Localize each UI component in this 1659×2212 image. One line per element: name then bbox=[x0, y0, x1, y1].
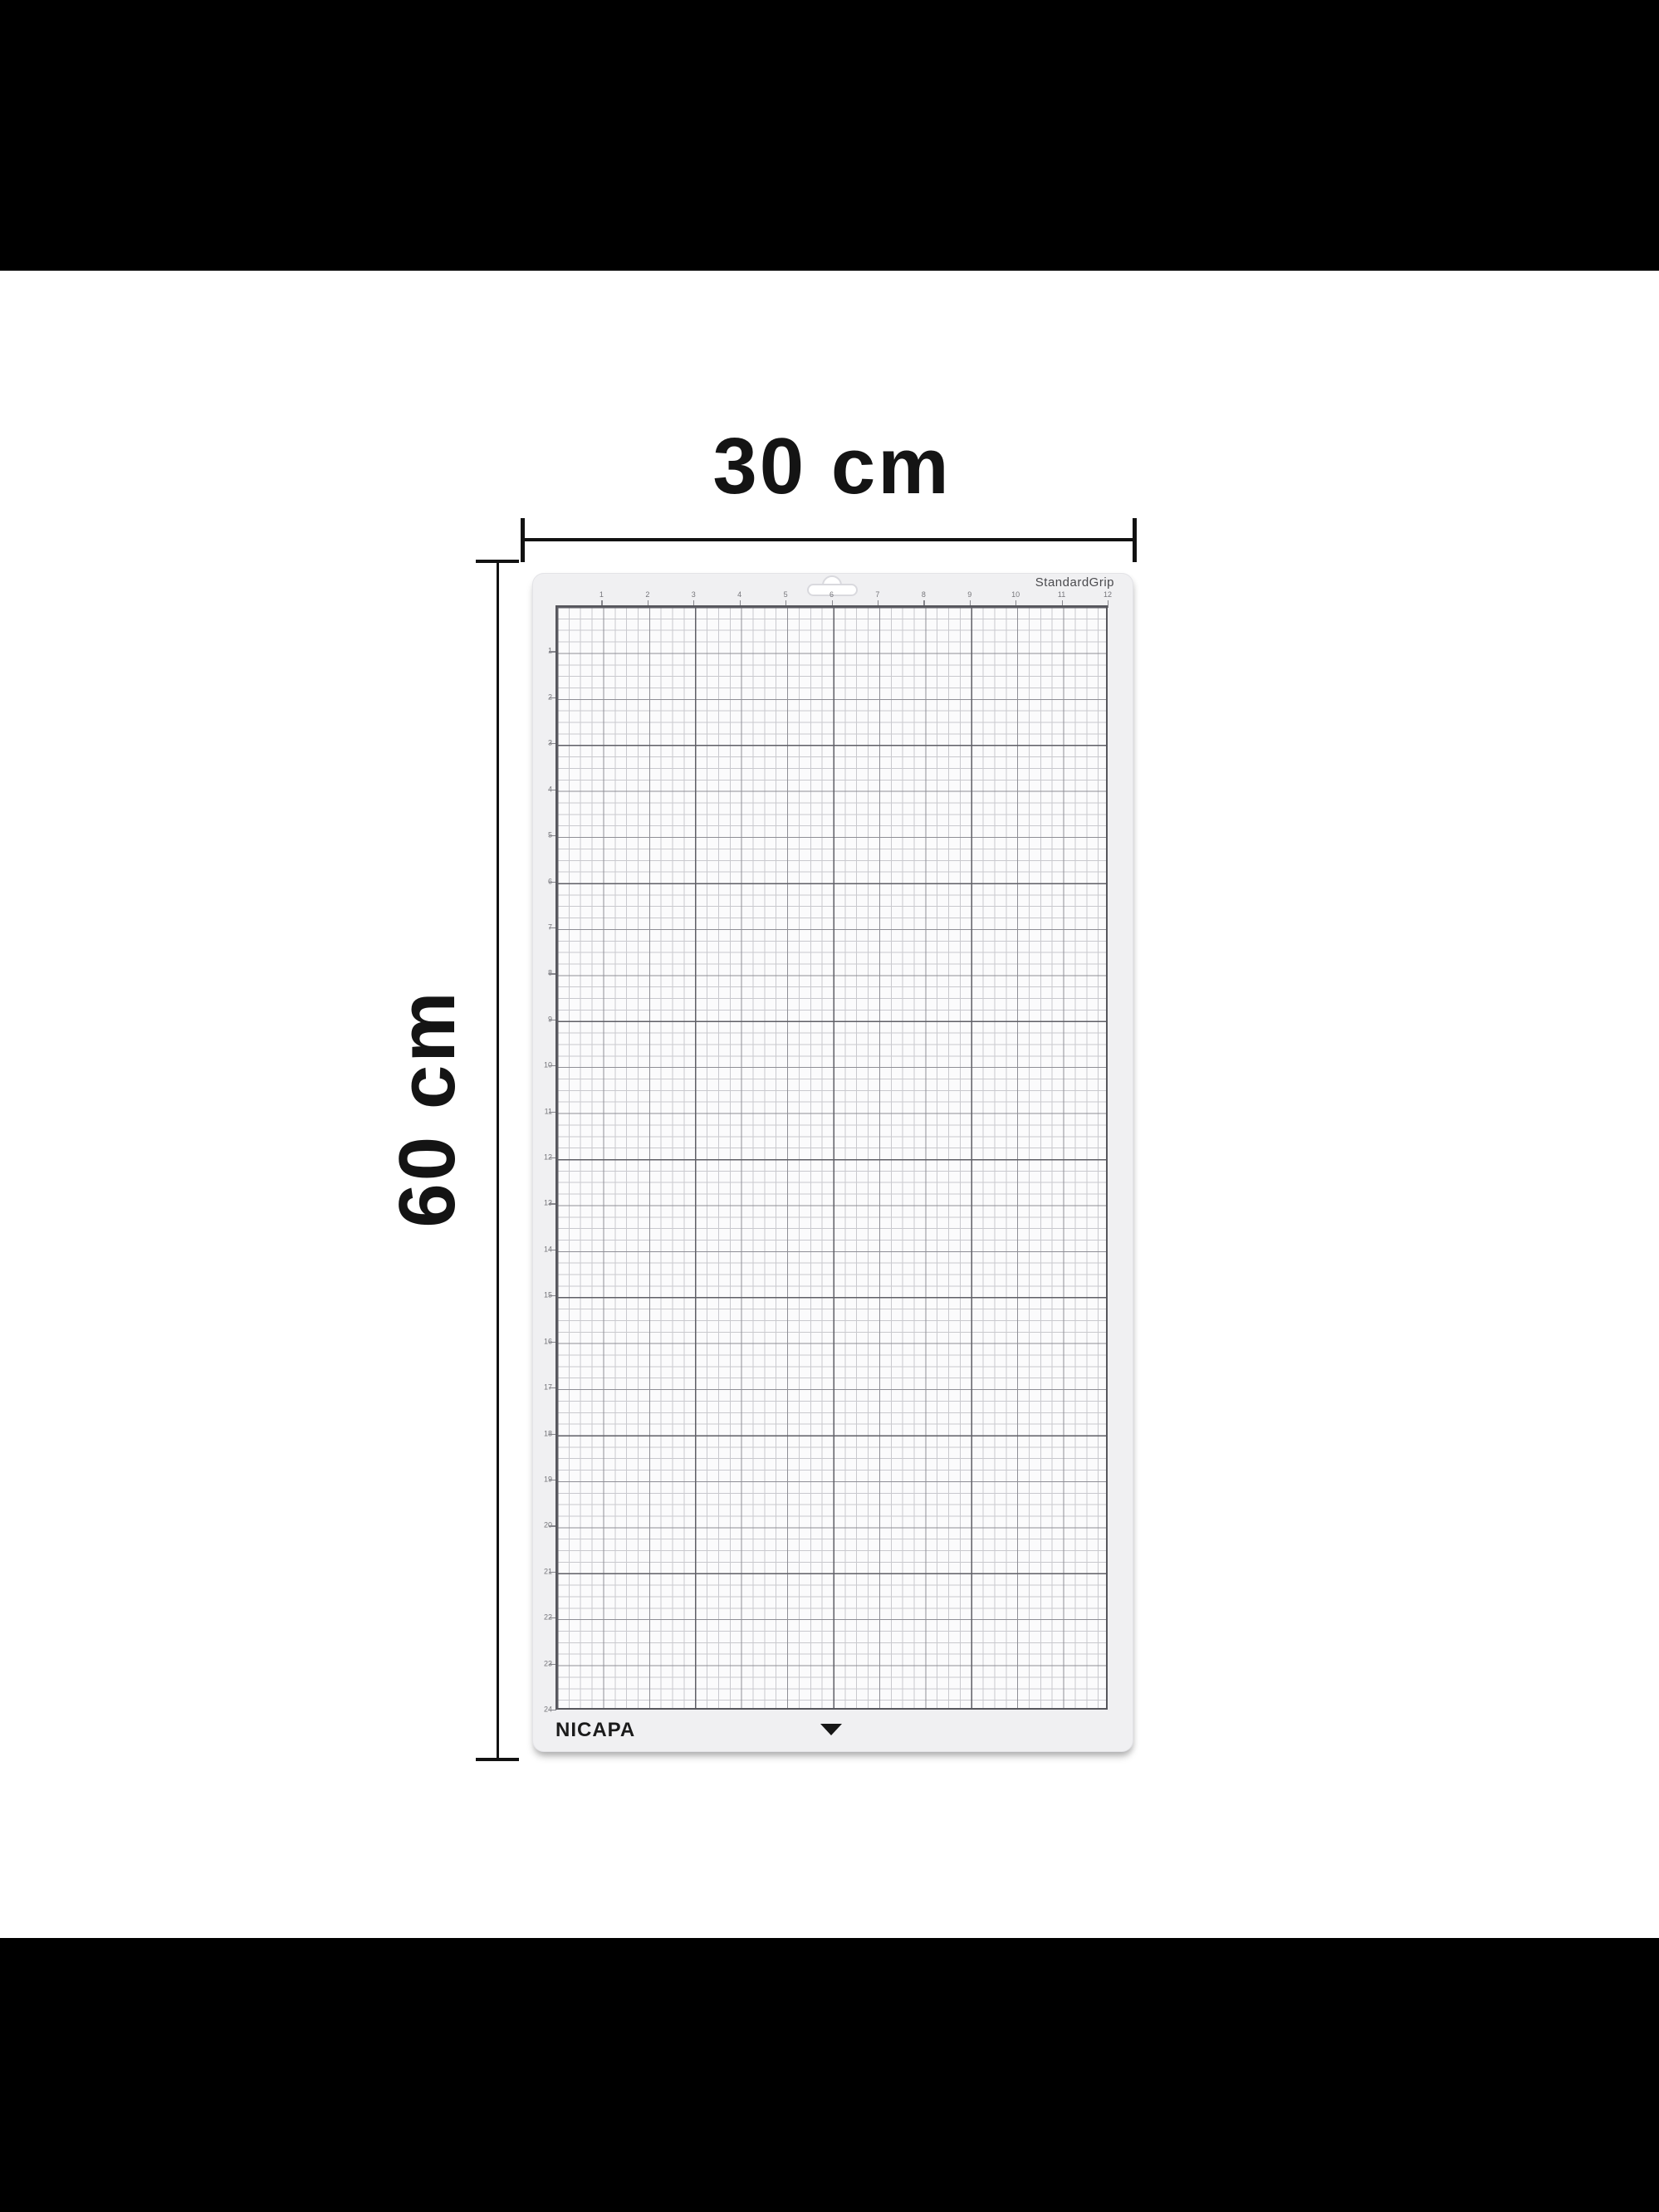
ruler-top-number: 2 bbox=[645, 591, 649, 599]
ruler-top-number: 6 bbox=[829, 591, 834, 599]
width-dimension-right-tick bbox=[1133, 518, 1137, 562]
grid-area bbox=[555, 605, 1108, 1710]
height-dimension-top-tick bbox=[476, 560, 519, 563]
ruler-top-number: 10 bbox=[1011, 591, 1020, 599]
letterbox-bottom-bar bbox=[0, 1938, 1659, 2212]
ruler-top-number: 12 bbox=[1104, 591, 1112, 599]
height-dimension-line bbox=[497, 561, 499, 1760]
ruler-top-number: 11 bbox=[1058, 591, 1065, 599]
ruler-top-number: 7 bbox=[875, 591, 879, 599]
brand-logo: NICAPA bbox=[555, 1719, 635, 1742]
ruler-top-number: 4 bbox=[737, 591, 741, 599]
ruler-top: 123456789101112 bbox=[555, 574, 1108, 609]
ruler-left: 123456789101112131415161718192021222324 bbox=[533, 605, 555, 1710]
triangle-down-icon bbox=[820, 1724, 842, 1735]
ruler-top-number: 5 bbox=[784, 591, 788, 599]
product-dimension-diagram: 30 cm 60 cm StandardGrip 123456789101112… bbox=[0, 0, 1659, 2212]
width-dimension-left-tick bbox=[521, 518, 525, 562]
ruler-left-tick bbox=[549, 1710, 556, 1710]
ruler-top-number: 3 bbox=[692, 591, 696, 599]
letterbox-top-bar bbox=[0, 0, 1659, 271]
ruler-top-number: 1 bbox=[599, 591, 604, 599]
height-dimension-label: 60 cm bbox=[378, 901, 477, 1316]
width-dimension-line bbox=[523, 538, 1136, 541]
height-dimension-bottom-tick bbox=[476, 1758, 519, 1761]
cutting-mat: StandardGrip 123456789101112 12345678910… bbox=[532, 573, 1133, 1752]
ruler-top-tick bbox=[1108, 600, 1108, 608]
width-dimension-label: 30 cm bbox=[525, 427, 1139, 507]
ruler-top-number: 9 bbox=[967, 591, 971, 599]
ruler-top-number: 8 bbox=[922, 591, 926, 599]
